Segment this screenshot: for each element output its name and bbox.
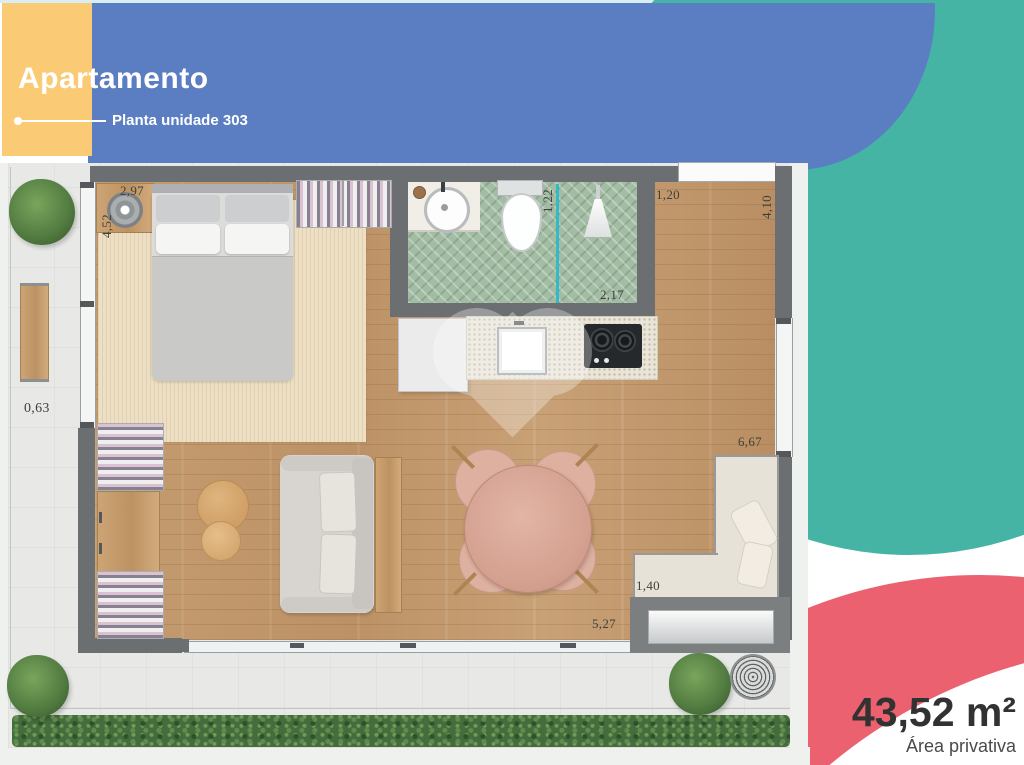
- outer-walkway-bottom: [0, 747, 810, 765]
- measure-shower-width: 2,17: [600, 288, 624, 301]
- cabinet-handle: [99, 512, 102, 523]
- area-badge: 43,52 m² Área privativa: [852, 692, 1016, 757]
- wall-left-lower: [78, 428, 95, 653]
- sofa-cushion: [319, 533, 357, 594]
- plant-terrace-left: [7, 655, 69, 717]
- wall-bottom-left: [78, 638, 182, 653]
- shower-arm: [596, 185, 600, 201]
- soap-dish: [413, 186, 426, 199]
- window-tick: [80, 301, 94, 307]
- cooktop-burner-right: [613, 329, 637, 353]
- connector-line: [22, 120, 106, 122]
- measure-bench-length: 6,67: [738, 435, 762, 448]
- floor-plan-page: Apartamento Planta unidade 303: [0, 0, 1024, 765]
- watermark-heart-point: [450, 312, 576, 438]
- measure-bedroom-depth: 4,52: [100, 214, 113, 238]
- bath-sink-drain: [441, 204, 448, 211]
- plant-terrace-right: [669, 653, 731, 715]
- terrace-right-edge: [790, 163, 808, 763]
- wardrobe-top: [296, 180, 392, 228]
- door-handle: [290, 643, 304, 648]
- measure-bathroom-glass: 1,22: [541, 189, 554, 213]
- dining-table: [464, 465, 592, 593]
- bed-pillow-white-right: [225, 224, 289, 254]
- door-frame-tick: [181, 639, 189, 652]
- bath-faucet: [441, 182, 445, 192]
- closet-lower: [97, 571, 164, 639]
- terrace-border-left: [10, 167, 11, 708]
- hedge-strip: [12, 715, 790, 747]
- measure-bench-depth: 1,40: [636, 579, 660, 592]
- bed-pillow-grey-right: [225, 195, 289, 222]
- window-tick: [80, 182, 94, 188]
- sofa-cushion: [319, 471, 357, 532]
- bed-pillow-grey-left: [156, 195, 220, 222]
- unit-subtitle: Planta unidade 303: [112, 112, 248, 129]
- window-right: [776, 318, 793, 457]
- side-cabinet: [97, 491, 160, 572]
- window-tick: [776, 318, 791, 324]
- console-table: [375, 457, 402, 613]
- plant-balcony: [9, 179, 75, 245]
- decorative-rosette: [732, 656, 774, 698]
- bed-pillow-white-left: [156, 224, 220, 254]
- measure-living-width: 5,27: [592, 617, 616, 630]
- terrace-border-bottom: [10, 708, 790, 709]
- blue-header-shape: [88, 3, 935, 170]
- measure-hall-depth: 4,10: [760, 195, 773, 219]
- entry-door: [678, 162, 776, 182]
- page-title: Apartamento: [18, 62, 209, 96]
- watermark-heart-icon: [433, 303, 593, 453]
- measure-bedroom-width: 2,97: [120, 184, 144, 197]
- area-label: Área privativa: [852, 736, 1016, 757]
- connector-dot: [14, 117, 22, 125]
- planter-inner: [648, 610, 774, 644]
- wall-bathroom-right: [637, 182, 655, 310]
- wall-bathroom-left: [390, 182, 408, 310]
- balcony-bench: [20, 283, 49, 382]
- cooktop-knob: [594, 358, 599, 363]
- bath-sink-basin: [424, 187, 470, 233]
- pouf-small: [201, 521, 241, 561]
- closet-upper: [97, 423, 164, 491]
- cooktop-knob: [604, 358, 609, 363]
- door-handle: [400, 643, 416, 648]
- wall-right-upper: [775, 166, 792, 318]
- area-value: 43,52 m²: [852, 692, 1016, 733]
- measure-balcony-width: 0,63: [24, 402, 50, 416]
- wardrobe-divider: [342, 180, 344, 226]
- bench-horizontal: [633, 553, 718, 601]
- bed-headboard: [152, 184, 293, 193]
- door-handle: [560, 643, 576, 648]
- shower-glass-partition: [556, 184, 559, 303]
- cabinet-handle: [99, 543, 102, 554]
- bed-blanket: [152, 256, 293, 381]
- measure-hall-width: 1,20: [656, 188, 680, 201]
